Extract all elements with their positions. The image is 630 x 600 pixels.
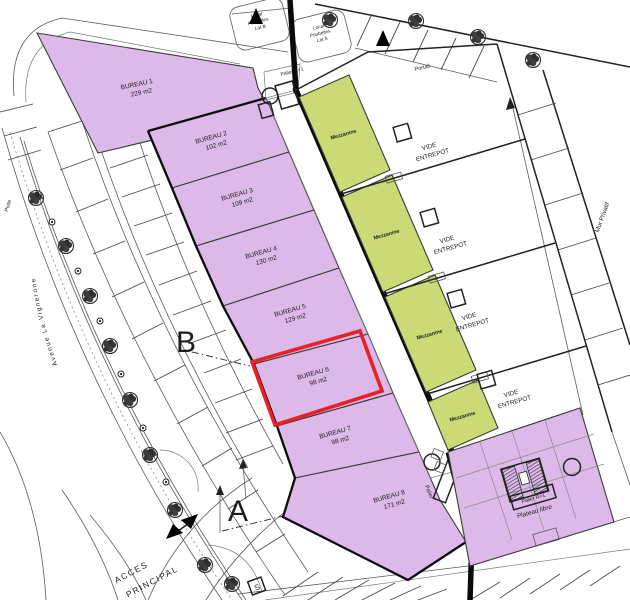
entry-roads xyxy=(62,450,300,600)
tree-icon xyxy=(168,503,183,518)
lamp-icon xyxy=(97,318,103,324)
tree-icon xyxy=(143,448,158,463)
site-plan: Avenue La Vignerone Piste Portail Local … xyxy=(0,0,630,600)
tree-icon xyxy=(198,558,213,573)
site-plan-svg: Avenue La Vignerone Piste Portail Local … xyxy=(0,0,630,600)
zone-a-leader xyxy=(216,485,283,533)
two-way-arrows xyxy=(166,514,198,539)
tree-icon xyxy=(409,14,424,29)
far-left-stripes xyxy=(0,104,41,160)
zone-a-label: A xyxy=(228,495,248,528)
arrow-icon xyxy=(166,524,183,539)
piste-label: Piste xyxy=(4,199,13,212)
vide-entrepot-label: VIDE ENTREPOT xyxy=(495,386,533,411)
svg-text:S: S xyxy=(253,582,261,592)
tree-icon xyxy=(59,239,74,254)
lamp-icon xyxy=(75,268,81,274)
vide-entrepot-label: VIDE ENTREPOT xyxy=(413,139,451,164)
tree-icon xyxy=(225,577,240,592)
triangle-marker xyxy=(376,30,390,46)
palier-r1-top-label: Palier R+1 xyxy=(280,66,304,78)
mur-privatif-label: Mur Privatif xyxy=(594,201,611,233)
lamp-icon xyxy=(49,219,55,225)
acces-principal-label: ACCES PRINCIPAL xyxy=(113,548,180,600)
vide-entrepot-label: VIDE ENTREPOT xyxy=(453,309,491,334)
tree-icon xyxy=(471,30,486,45)
column-post-icon xyxy=(393,123,412,142)
portail-label: Portail xyxy=(414,64,431,73)
tree-icon xyxy=(83,289,98,304)
local-poubelles-lot-a: Local Poubelles Lot A xyxy=(290,8,353,64)
vide-entrepot-label: VIDE ENTREPOT xyxy=(431,232,469,257)
tree-icon xyxy=(123,393,138,408)
avenue-label: Avenue La Vignerone xyxy=(30,277,59,367)
zone-b-leader xyxy=(192,352,250,499)
tree-icon xyxy=(526,53,541,68)
lamp-icon xyxy=(163,479,169,485)
zone-b-label: B xyxy=(176,326,196,359)
column-post-icon xyxy=(420,208,439,227)
lamp-icon xyxy=(118,371,124,377)
tree-icon xyxy=(29,191,44,206)
lamp-icon xyxy=(140,425,146,431)
column-post-icon xyxy=(447,289,466,308)
tree-icon xyxy=(103,339,118,354)
